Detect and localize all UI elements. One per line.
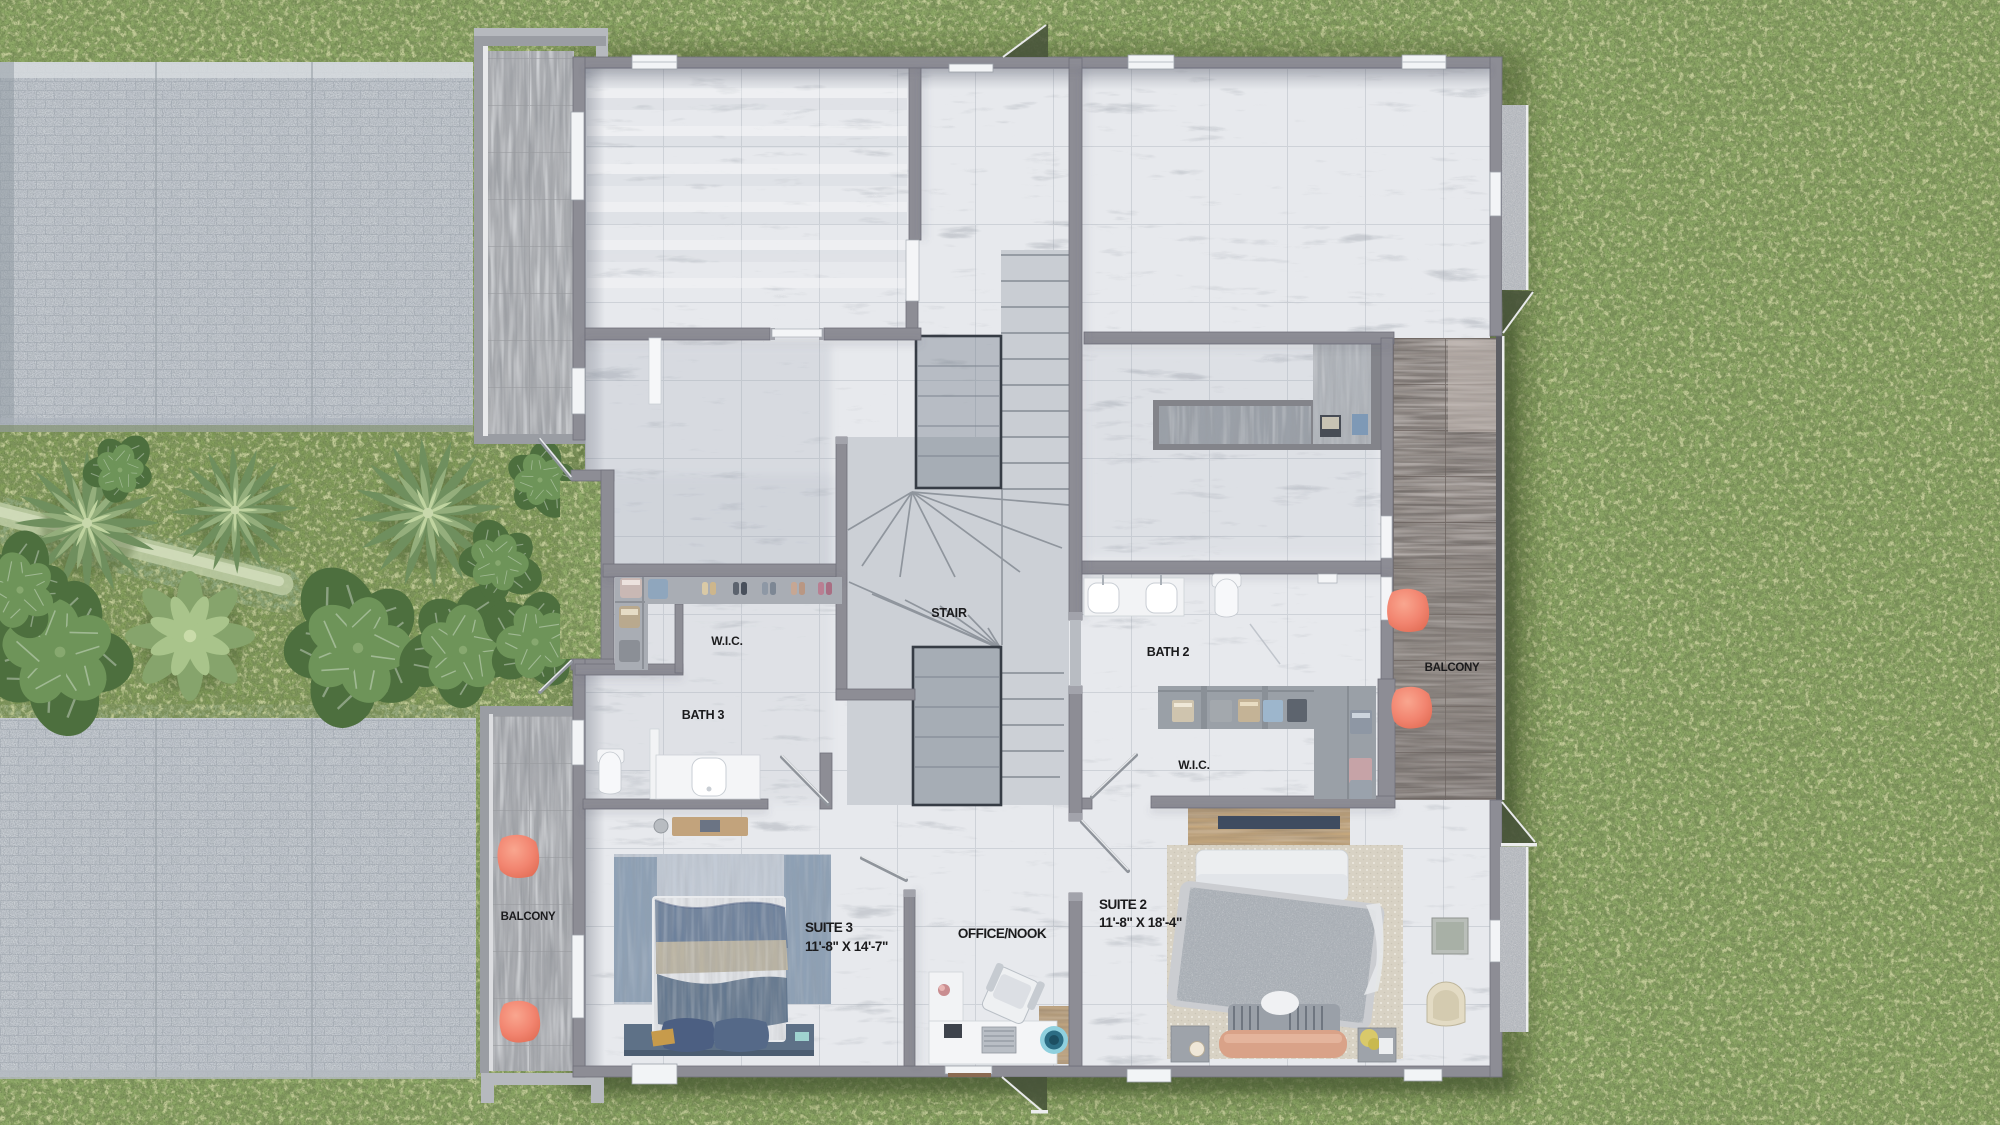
- svg-text:SUITE 3: SUITE 3: [805, 920, 854, 935]
- svg-text:W.I.C.: W.I.C.: [1178, 758, 1209, 772]
- svg-text:BATH 3: BATH 3: [682, 708, 725, 722]
- svg-text:11'-8" X 14'-7": 11'-8" X 14'-7": [805, 939, 888, 954]
- svg-text:SUITE 2: SUITE 2: [1099, 897, 1147, 912]
- svg-text:11'-8" X 18'-4": 11'-8" X 18'-4": [1099, 915, 1182, 930]
- svg-text:BALCONY: BALCONY: [1425, 662, 1480, 674]
- svg-text:BALCONY: BALCONY: [501, 911, 556, 923]
- svg-text:W.I.C.: W.I.C.: [711, 634, 742, 648]
- svg-text:BATH 2: BATH 2: [1147, 645, 1190, 659]
- svg-text:OFFICE/NOOK: OFFICE/NOOK: [958, 926, 1047, 941]
- svg-text:STAIR: STAIR: [931, 606, 967, 620]
